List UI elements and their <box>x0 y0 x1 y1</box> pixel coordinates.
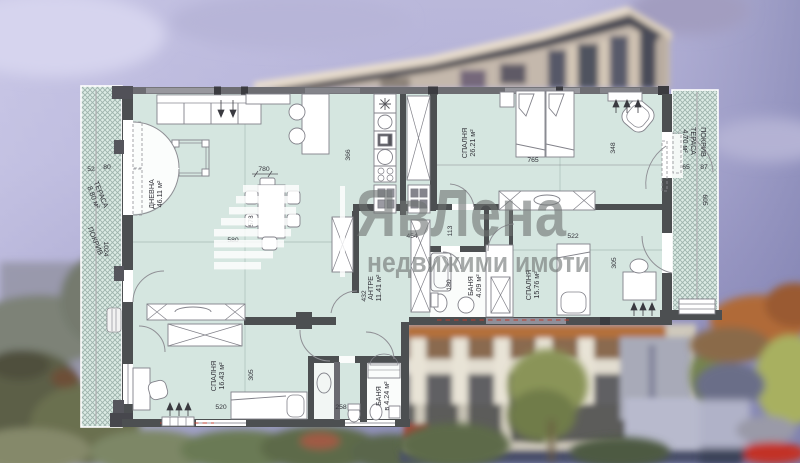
svg-text:ПОКРИВ: ПОКРИВ <box>699 127 708 157</box>
svg-text:1024: 1024 <box>102 241 109 256</box>
svg-text:522: 522 <box>567 233 579 240</box>
svg-text:366: 366 <box>345 149 352 161</box>
svg-text:65: 65 <box>682 164 690 171</box>
svg-text:26.21 м²: 26.21 м² <box>468 129 477 157</box>
svg-text:520: 520 <box>215 404 227 411</box>
svg-text:305: 305 <box>248 369 255 381</box>
svg-text:780: 780 <box>258 166 270 173</box>
svg-text:432: 432 <box>361 290 368 302</box>
svg-text:605: 605 <box>701 194 708 206</box>
svg-text:46.11 м²: 46.11 м² <box>155 180 164 207</box>
svg-text:80: 80 <box>103 164 111 171</box>
svg-text:258: 258 <box>335 404 347 411</box>
svg-text:4.70 м²: 4.70 м² <box>681 129 690 153</box>
svg-text:недвижими имоти: недвижими имоти <box>367 247 590 279</box>
svg-text:305: 305 <box>611 257 618 269</box>
svg-text:16.43 м²: 16.43 м² <box>217 362 226 390</box>
svg-text:87: 87 <box>700 164 708 171</box>
svg-text:765: 765 <box>527 157 539 164</box>
svg-text:180: 180 <box>446 279 453 291</box>
svg-text:в 4.24 м²: в 4.24 м² <box>382 381 391 411</box>
svg-text:52: 52 <box>87 166 95 173</box>
svg-text:348: 348 <box>610 142 617 154</box>
svg-text:ЯвЛена: ЯвЛена <box>356 176 567 251</box>
